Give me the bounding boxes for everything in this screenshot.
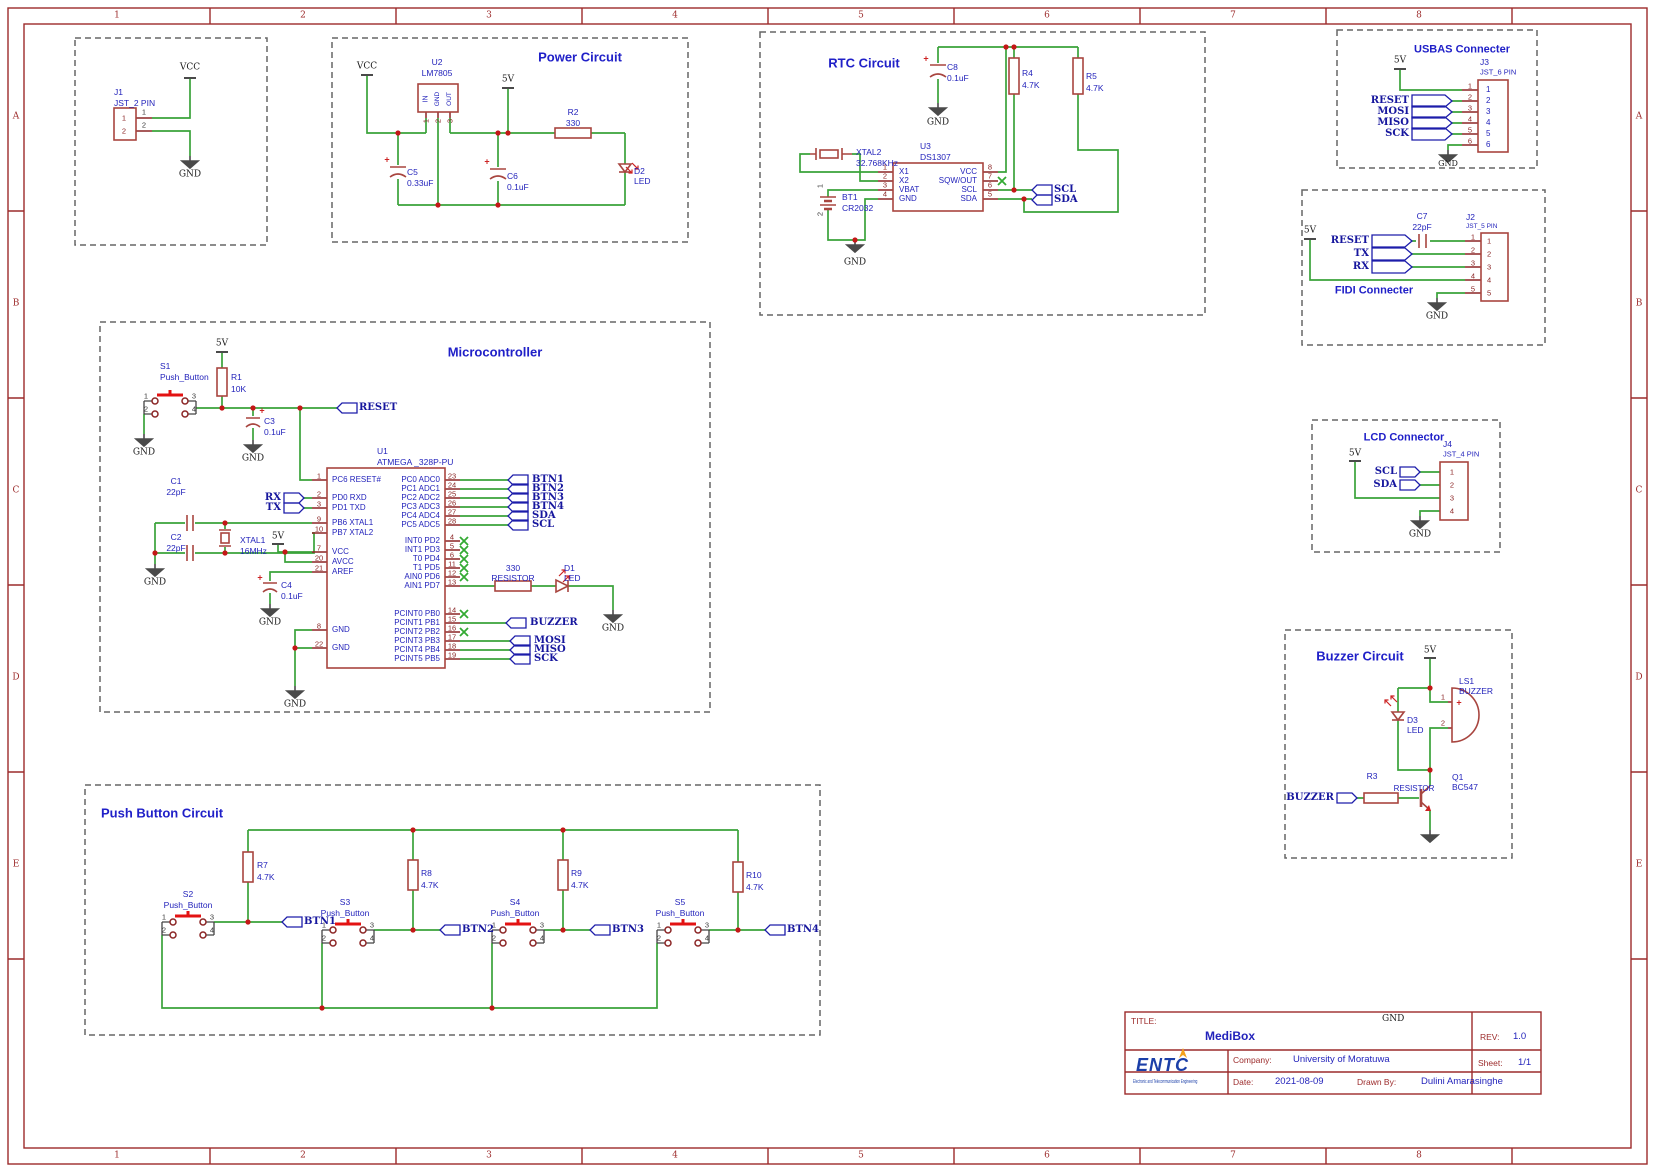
j1-ref: J1 [114, 88, 123, 97]
j3-num4: 4 [1468, 115, 1472, 123]
ls1-ref: LS1 [1459, 677, 1474, 686]
j2-name2: 2 [1487, 250, 1491, 258]
r10-ref: R10 [746, 871, 762, 880]
r4-ref: R4 [1022, 69, 1033, 78]
frame-row-right-D: D [1635, 674, 1642, 683]
d2-ref: D2 [634, 167, 645, 176]
j2-name4: 4 [1487, 276, 1491, 284]
j4-name3: 3 [1450, 494, 1454, 502]
d3-led [1385, 696, 1404, 720]
u3-scl: SCL [961, 186, 977, 194]
s2-num3: 3 [210, 913, 214, 921]
xtal1-value: 16MHz [240, 547, 267, 556]
d3-value: LED [1407, 726, 1424, 735]
date-label: Date: [1233, 1078, 1253, 1087]
u1-pc4: PC4 ADC4 [401, 512, 440, 520]
u1-num1: 1 [317, 472, 321, 480]
u2-pin-gnd: GND [435, 92, 442, 106]
power-vcc-label: VCC [357, 63, 377, 72]
c4-plus: + [257, 574, 262, 583]
s1-num4: 4 [192, 405, 196, 413]
u1-num8: 8 [317, 622, 321, 630]
j1-vcc-label: VCC [180, 64, 200, 73]
r2-resistor [555, 128, 591, 138]
c1-capacitor [187, 515, 193, 531]
d3-ref: D3 [1407, 716, 1418, 725]
ls1-num1: 1 [1441, 693, 1445, 701]
j3-name3: 3 [1486, 108, 1490, 116]
r4-resistor [1009, 58, 1019, 94]
fidi-title: FIDI Connecter [1335, 286, 1413, 297]
section-power-input [75, 38, 267, 245]
u3-num3: 3 [883, 181, 887, 189]
c8-value: 0.1uF [947, 74, 969, 83]
j2-value: JST_5 PIN [1466, 224, 1497, 231]
j3-num2: 2 [1468, 93, 1472, 101]
frame-col-bottom-1: 1 [114, 1152, 120, 1161]
c6-value: 0.1uF [507, 183, 529, 192]
u1-pc1: PC1 ADC1 [401, 485, 440, 493]
r9-value: 4.7K [571, 881, 589, 890]
u1-num13: 13 [448, 578, 456, 586]
r2-ref: R2 [568, 108, 579, 117]
s2-num2: 2 [162, 926, 166, 934]
c8-ref: C8 [947, 63, 958, 72]
frame-col-bottom-5: 5 [858, 1152, 864, 1161]
frame-col-top-1: 1 [114, 12, 120, 21]
fidi-gnd-label: GND [1426, 313, 1448, 322]
r8-resistor [408, 860, 418, 890]
j3-num5: 5 [1468, 126, 1472, 134]
u1-num12: 12 [448, 569, 456, 577]
u1-avcc: AVCC [332, 558, 354, 566]
j4-name4: 4 [1450, 507, 1454, 515]
mcu-tx-label: TX [266, 503, 281, 513]
net-label-shapes [282, 95, 1452, 935]
s1-push-button [144, 390, 196, 417]
s5-num1: 1 [657, 921, 661, 929]
lcd-gnd-label: GND [1409, 531, 1431, 540]
c5-ref: C5 [407, 168, 418, 177]
j3-name4: 4 [1486, 119, 1490, 127]
u1-num16: 16 [448, 624, 456, 632]
u3-num5: 5 [988, 190, 992, 198]
fidi-tx-label: TX [1354, 249, 1369, 259]
r7-resistor [243, 852, 253, 882]
u1-num28: 28 [448, 517, 456, 525]
u1-num6: 6 [450, 551, 454, 559]
r3-resistor [1364, 793, 1398, 803]
mcu-scl-label: SCL [532, 520, 554, 530]
j1-pin2-num: 2 [142, 121, 146, 129]
d1-value: LED [564, 574, 581, 583]
c4-ref: C4 [281, 581, 292, 590]
c6-capacitor [490, 169, 506, 179]
s1-num2: 2 [144, 405, 148, 413]
fidi-reset-label: RESET [1331, 236, 1369, 246]
u3-num4: 4 [883, 190, 887, 198]
r4-value: 4.7K [1022, 81, 1040, 90]
u1-num3: 3 [317, 500, 321, 508]
c2-value: 22pF [166, 544, 185, 553]
j2-name5: 5 [1487, 289, 1491, 297]
u1-ain0: AIN0 PD6 [404, 573, 440, 581]
c3-value: 0.1uF [264, 428, 286, 437]
frame-col-bottom-6: 6 [1044, 1152, 1050, 1161]
u1-value: ATMEGA _328P-PU [377, 458, 453, 467]
u1-num22: 22 [315, 640, 323, 648]
rev-value: 1.0 [1513, 1032, 1526, 1042]
lcd-title: LCD Connector [1364, 433, 1445, 444]
u1-gnd22: GND [332, 644, 350, 652]
section-push-button-circuit [85, 785, 820, 1035]
bt1-value: CR2032 [842, 204, 873, 213]
mcu-5v1-label: 5V [216, 340, 228, 349]
u1-pc3: PC3 ADC3 [401, 503, 440, 511]
s5-num3: 3 [705, 921, 709, 929]
no-connect-marks [460, 177, 1006, 636]
xtal2-crystal [810, 148, 852, 160]
j2-num1: 1 [1471, 233, 1475, 241]
u1-num10: 10 [315, 525, 323, 533]
j2-num4: 4 [1471, 272, 1475, 280]
u3-value: DS1307 [920, 153, 951, 162]
u1-t1: T1 PD5 [413, 564, 440, 572]
pb-btn1-label: BTN1 [304, 917, 336, 927]
frame-col-bottom-4: 4 [672, 1152, 678, 1161]
j1-gnd-label: GND [179, 171, 201, 180]
s5-push-button [657, 919, 709, 946]
q1-value: BC547 [1452, 783, 1478, 792]
u3-x2: X2 [899, 177, 909, 185]
u1-num24: 24 [448, 481, 456, 489]
r10-resistor [733, 862, 743, 892]
ls1-num2: 2 [1441, 719, 1445, 727]
u3-sda: SDA [961, 195, 977, 203]
u1-aref: AREF [332, 568, 353, 576]
stray-gnd-text: GND [1382, 1015, 1404, 1024]
d2-value: LED [634, 177, 651, 186]
ls1-value: BUZZER [1459, 687, 1493, 696]
rtc-gnd1-label: GND [927, 119, 949, 128]
rev-label: REV: [1480, 1033, 1500, 1042]
c5-value: 0.33uF [407, 179, 433, 188]
u1-t0: T0 PD4 [413, 555, 440, 563]
company-value: University of Moratuwa [1293, 1055, 1390, 1065]
s2-value: Push_Button [164, 901, 213, 910]
u1-pcint5: PCINT5 PB5 [394, 655, 440, 663]
drawn-by-value: Dulini Amarasinghe [1421, 1077, 1503, 1087]
usbas-5v-label: 5V [1394, 57, 1406, 66]
u1-pcint4: PCINT4 PB4 [394, 646, 440, 654]
mcu-sck-label: SCK [534, 654, 558, 664]
u1-num21: 21 [315, 564, 323, 572]
fidi-5v-label: 5V [1304, 227, 1316, 236]
pb-title: Push Button Circuit [101, 807, 223, 820]
c8-capacitor [930, 65, 946, 77]
frame-col-top-5: 5 [858, 12, 864, 21]
mcu-r330-value: 330 [506, 564, 520, 573]
u2-num3: 3 [446, 119, 454, 123]
j3-num6: 6 [1468, 137, 1472, 145]
section-power-circuit [332, 38, 688, 242]
j2-num3: 3 [1471, 259, 1475, 267]
u1-pd0: PD0 RXD [332, 494, 367, 502]
power-5v-label: 5V [502, 76, 514, 85]
s2-push-button [162, 911, 214, 938]
entc-logo-subtext: Electronic and Telecommunication Enginee… [1133, 1080, 1197, 1085]
u1-pcint0: PCINT0 PB0 [394, 610, 440, 618]
u1-pc5: PC5 ADC5 [401, 521, 440, 529]
j2-num5: 5 [1471, 285, 1475, 293]
j1-pin2-name: 2 [122, 127, 126, 135]
frame-col-top-4: 4 [672, 12, 678, 21]
bt1-battery [820, 197, 836, 209]
u1-ref: U1 [377, 447, 388, 456]
u1-int1: INT1 PD3 [405, 546, 440, 554]
pb-btn2-label: BTN2 [462, 925, 494, 935]
u1-pcint2: PCINT2 PB2 [394, 628, 440, 636]
j3-name1: 1 [1486, 86, 1490, 94]
frame-row-right-A: A [1636, 113, 1643, 122]
s4-num2: 2 [492, 934, 496, 942]
frame-col-top-6: 6 [1044, 12, 1050, 21]
bt1-ref: BT1 [842, 193, 858, 202]
frame-col-bottom-3: 3 [486, 1152, 492, 1161]
u2-ref: U2 [432, 58, 443, 67]
xtal1-crystal [219, 530, 231, 546]
usbas-title: USBAS Connecter [1414, 45, 1510, 56]
usbas-sck-label: SCK [1385, 129, 1409, 139]
sheet-title: MediBox [1205, 1030, 1255, 1042]
s5-ref: S5 [675, 898, 685, 907]
frame-row-left-A: A [13, 113, 20, 122]
j3-connector-body [1478, 80, 1508, 152]
schematic-canvas [0, 0, 1655, 1172]
xtal2-value: 32.768KHz [856, 159, 898, 168]
rtc-title: RTC Circuit [828, 57, 900, 70]
j3-num1: 1 [1468, 82, 1472, 90]
ls1-buzzer-body [1452, 688, 1479, 742]
c3-ref: C3 [264, 417, 275, 426]
r8-ref: R8 [421, 869, 432, 878]
usbas-miso-label: MISO [1377, 118, 1409, 128]
j1-pin1-num: 1 [142, 108, 146, 116]
c1-ref: C1 [171, 477, 182, 486]
u1-pb7: PB7 XTAL2 [332, 529, 373, 537]
c1-value: 22pF [166, 488, 185, 497]
u3-sqw: SQW/OUT [939, 177, 977, 185]
pb-btn4-label: BTN4 [787, 925, 819, 935]
u1-num11: 11 [448, 560, 456, 568]
xtal2-ref: XTAL2 [856, 148, 881, 157]
j1-value: JST_2 PIN [114, 99, 155, 108]
frame-col-top-8: 8 [1416, 12, 1422, 21]
c8-plus: + [923, 55, 928, 64]
s4-value: Push_Button [491, 909, 540, 918]
r9-ref: R9 [571, 869, 582, 878]
s2-num4: 4 [210, 926, 214, 934]
s2-ref: S2 [183, 890, 193, 899]
company-label: Company: [1233, 1056, 1272, 1065]
xtal1-ref: XTAL1 [240, 536, 265, 545]
r1-resistor [217, 368, 227, 396]
power-title: Power Circuit [538, 51, 622, 64]
s5-value: Push_Button [656, 909, 705, 918]
sheet-value: 1/1 [1518, 1058, 1531, 1068]
j2-num2: 2 [1471, 246, 1475, 254]
r5-value: 4.7K [1086, 84, 1104, 93]
r2-value: 330 [566, 119, 580, 128]
s1-ref: S1 [160, 362, 170, 371]
date-value: 2021-08-09 [1275, 1077, 1324, 1087]
mcu-reset-label: RESET [359, 403, 397, 413]
frame-row-left-E: E [13, 861, 20, 870]
u1-num20: 20 [315, 554, 323, 562]
u1-num19: 19 [448, 651, 456, 659]
sheet-frame [8, 8, 1647, 1164]
frame-row-right-C: C [1636, 487, 1643, 496]
mcu-gnd1-label: GND [133, 449, 155, 458]
c3-plus: + [259, 407, 264, 416]
r3-ref: R3 [1367, 772, 1378, 781]
lcd-sda-label: SDA [1373, 480, 1397, 490]
mcu-gnd2-label: GND [242, 455, 264, 464]
pb-btn3-label: BTN3 [612, 925, 644, 935]
c7-ref: C7 [1417, 212, 1428, 221]
s4-num3: 3 [540, 921, 544, 929]
c5-capacitor [390, 167, 406, 177]
c7-capacitor [1419, 234, 1426, 248]
s3-num3: 3 [370, 921, 374, 929]
frame-col-top-2: 2 [300, 12, 306, 21]
frame-col-top-7: 7 [1230, 12, 1236, 21]
u1-pd1: PD1 TXD [332, 504, 366, 512]
u1-num15: 15 [448, 615, 456, 623]
r1-ref: R1 [231, 373, 242, 382]
mcu-title: Microcontroller [448, 346, 543, 359]
usbas-mosi-label: MOSI [1377, 107, 1409, 117]
mcu-gnd6-label: GND [602, 625, 624, 634]
c6-plus: + [484, 158, 489, 167]
r5-resistor [1073, 58, 1083, 94]
c5-plus: + [384, 156, 389, 165]
j2-connector-body [1481, 233, 1508, 301]
lcd-scl-label: SCL [1375, 467, 1397, 477]
c7-value: 22pF [1412, 223, 1431, 232]
u1-num2: 2 [317, 490, 321, 498]
frame-col-top-3: 3 [486, 12, 492, 21]
r1-value: 10K [231, 385, 246, 394]
u1-num23: 23 [448, 472, 456, 480]
schematic-sheet: VCCJ1JST_2 PIN1212GNDPower CircuitVCCU2L… [0, 0, 1655, 1172]
u2-num2: 2 [434, 119, 442, 123]
j2-name3: 3 [1487, 263, 1491, 271]
u1-vcc: VCC [332, 548, 349, 556]
bt1-num1: 1 [816, 184, 824, 188]
u1-num27: 27 [448, 508, 456, 516]
mcu-buzzer-label: BUZZER [530, 618, 578, 628]
s5-num2: 2 [657, 934, 661, 942]
u3-vbat: VBAT [899, 186, 919, 194]
frame-row-left-B: B [13, 300, 20, 309]
j3-num3: 3 [1468, 104, 1472, 112]
c3-capacitor [246, 418, 260, 427]
j4-name2: 2 [1450, 481, 1454, 489]
u3-x1: X1 [899, 168, 909, 176]
j3-name6: 6 [1486, 141, 1490, 149]
u1-num5: 5 [450, 542, 454, 550]
s1-num1: 1 [144, 392, 148, 400]
frame-row-left-C: C [13, 487, 20, 496]
j3-name5: 5 [1486, 130, 1490, 138]
frame-col-bottom-2: 2 [300, 1152, 306, 1161]
u2-value: LM7805 [422, 69, 453, 78]
u1-pcint3: PCINT3 PB3 [394, 637, 440, 645]
drawn-by-label: Drawn By: [1357, 1078, 1396, 1087]
section-boxes [75, 30, 1545, 1035]
mcu-gnd4-label: GND [259, 619, 281, 628]
u1-num14: 14 [448, 606, 456, 614]
lcd-5v-label: 5V [1349, 450, 1361, 459]
c2-ref: C2 [171, 533, 182, 542]
u1-num4: 4 [450, 533, 454, 541]
s3-ref: S3 [340, 898, 350, 907]
u1-num18: 18 [448, 642, 456, 650]
buzzer-net-label: BUZZER [1286, 793, 1334, 803]
mcu-5v2-label: 5V [272, 533, 284, 542]
buzzer-title: Buzzer Circuit [1316, 650, 1403, 663]
u3-vcc: VCC [960, 168, 977, 176]
u1-num25: 25 [448, 490, 456, 498]
r9-resistor [558, 860, 568, 890]
frame-row-left-D: D [12, 674, 19, 683]
buzzer-5v-label: 5V [1424, 647, 1436, 656]
u3-num8: 8 [988, 163, 992, 171]
s2-num1: 1 [162, 913, 166, 921]
s3-num2: 2 [322, 934, 326, 942]
j2-name1: 1 [1487, 237, 1491, 245]
frame-row-right-E: E [1636, 861, 1643, 870]
u1-num17: 17 [448, 633, 456, 641]
s5-num4: 4 [705, 934, 709, 942]
j4-value: JST_4 PIN [1443, 450, 1479, 458]
usbas-gnd-label: GND [1438, 160, 1458, 168]
u1-pcint1: PCINT1 PB1 [394, 619, 440, 627]
u1-num26: 26 [448, 499, 456, 507]
r5-ref: R5 [1086, 72, 1097, 81]
s1-num3: 3 [192, 392, 196, 400]
sheet-label: Sheet: [1478, 1059, 1503, 1068]
bt1-num2: 2 [816, 212, 824, 216]
u1-gnd8: GND [332, 626, 350, 634]
r10-value: 4.7K [746, 883, 764, 892]
j3-value: JST_6 PIN [1480, 68, 1516, 76]
ls1-plus: + [1456, 699, 1461, 708]
u2-pin-out: OUT [447, 92, 454, 106]
u2-num1: 1 [422, 119, 430, 123]
mcu-r330-name: RESISTOR [491, 574, 534, 583]
rtc-gnd2-label: GND [844, 259, 866, 268]
r8-value: 4.7K [421, 881, 439, 890]
components [114, 58, 1508, 946]
s1-value: Push_Button [160, 373, 209, 382]
c2-capacitor [187, 545, 193, 561]
frame-row-right-B: B [1636, 300, 1643, 309]
r3-value: RESISTOR [1394, 785, 1435, 793]
fidi-rx-label: RX [1353, 262, 1369, 272]
u3-ref: U3 [920, 142, 931, 151]
